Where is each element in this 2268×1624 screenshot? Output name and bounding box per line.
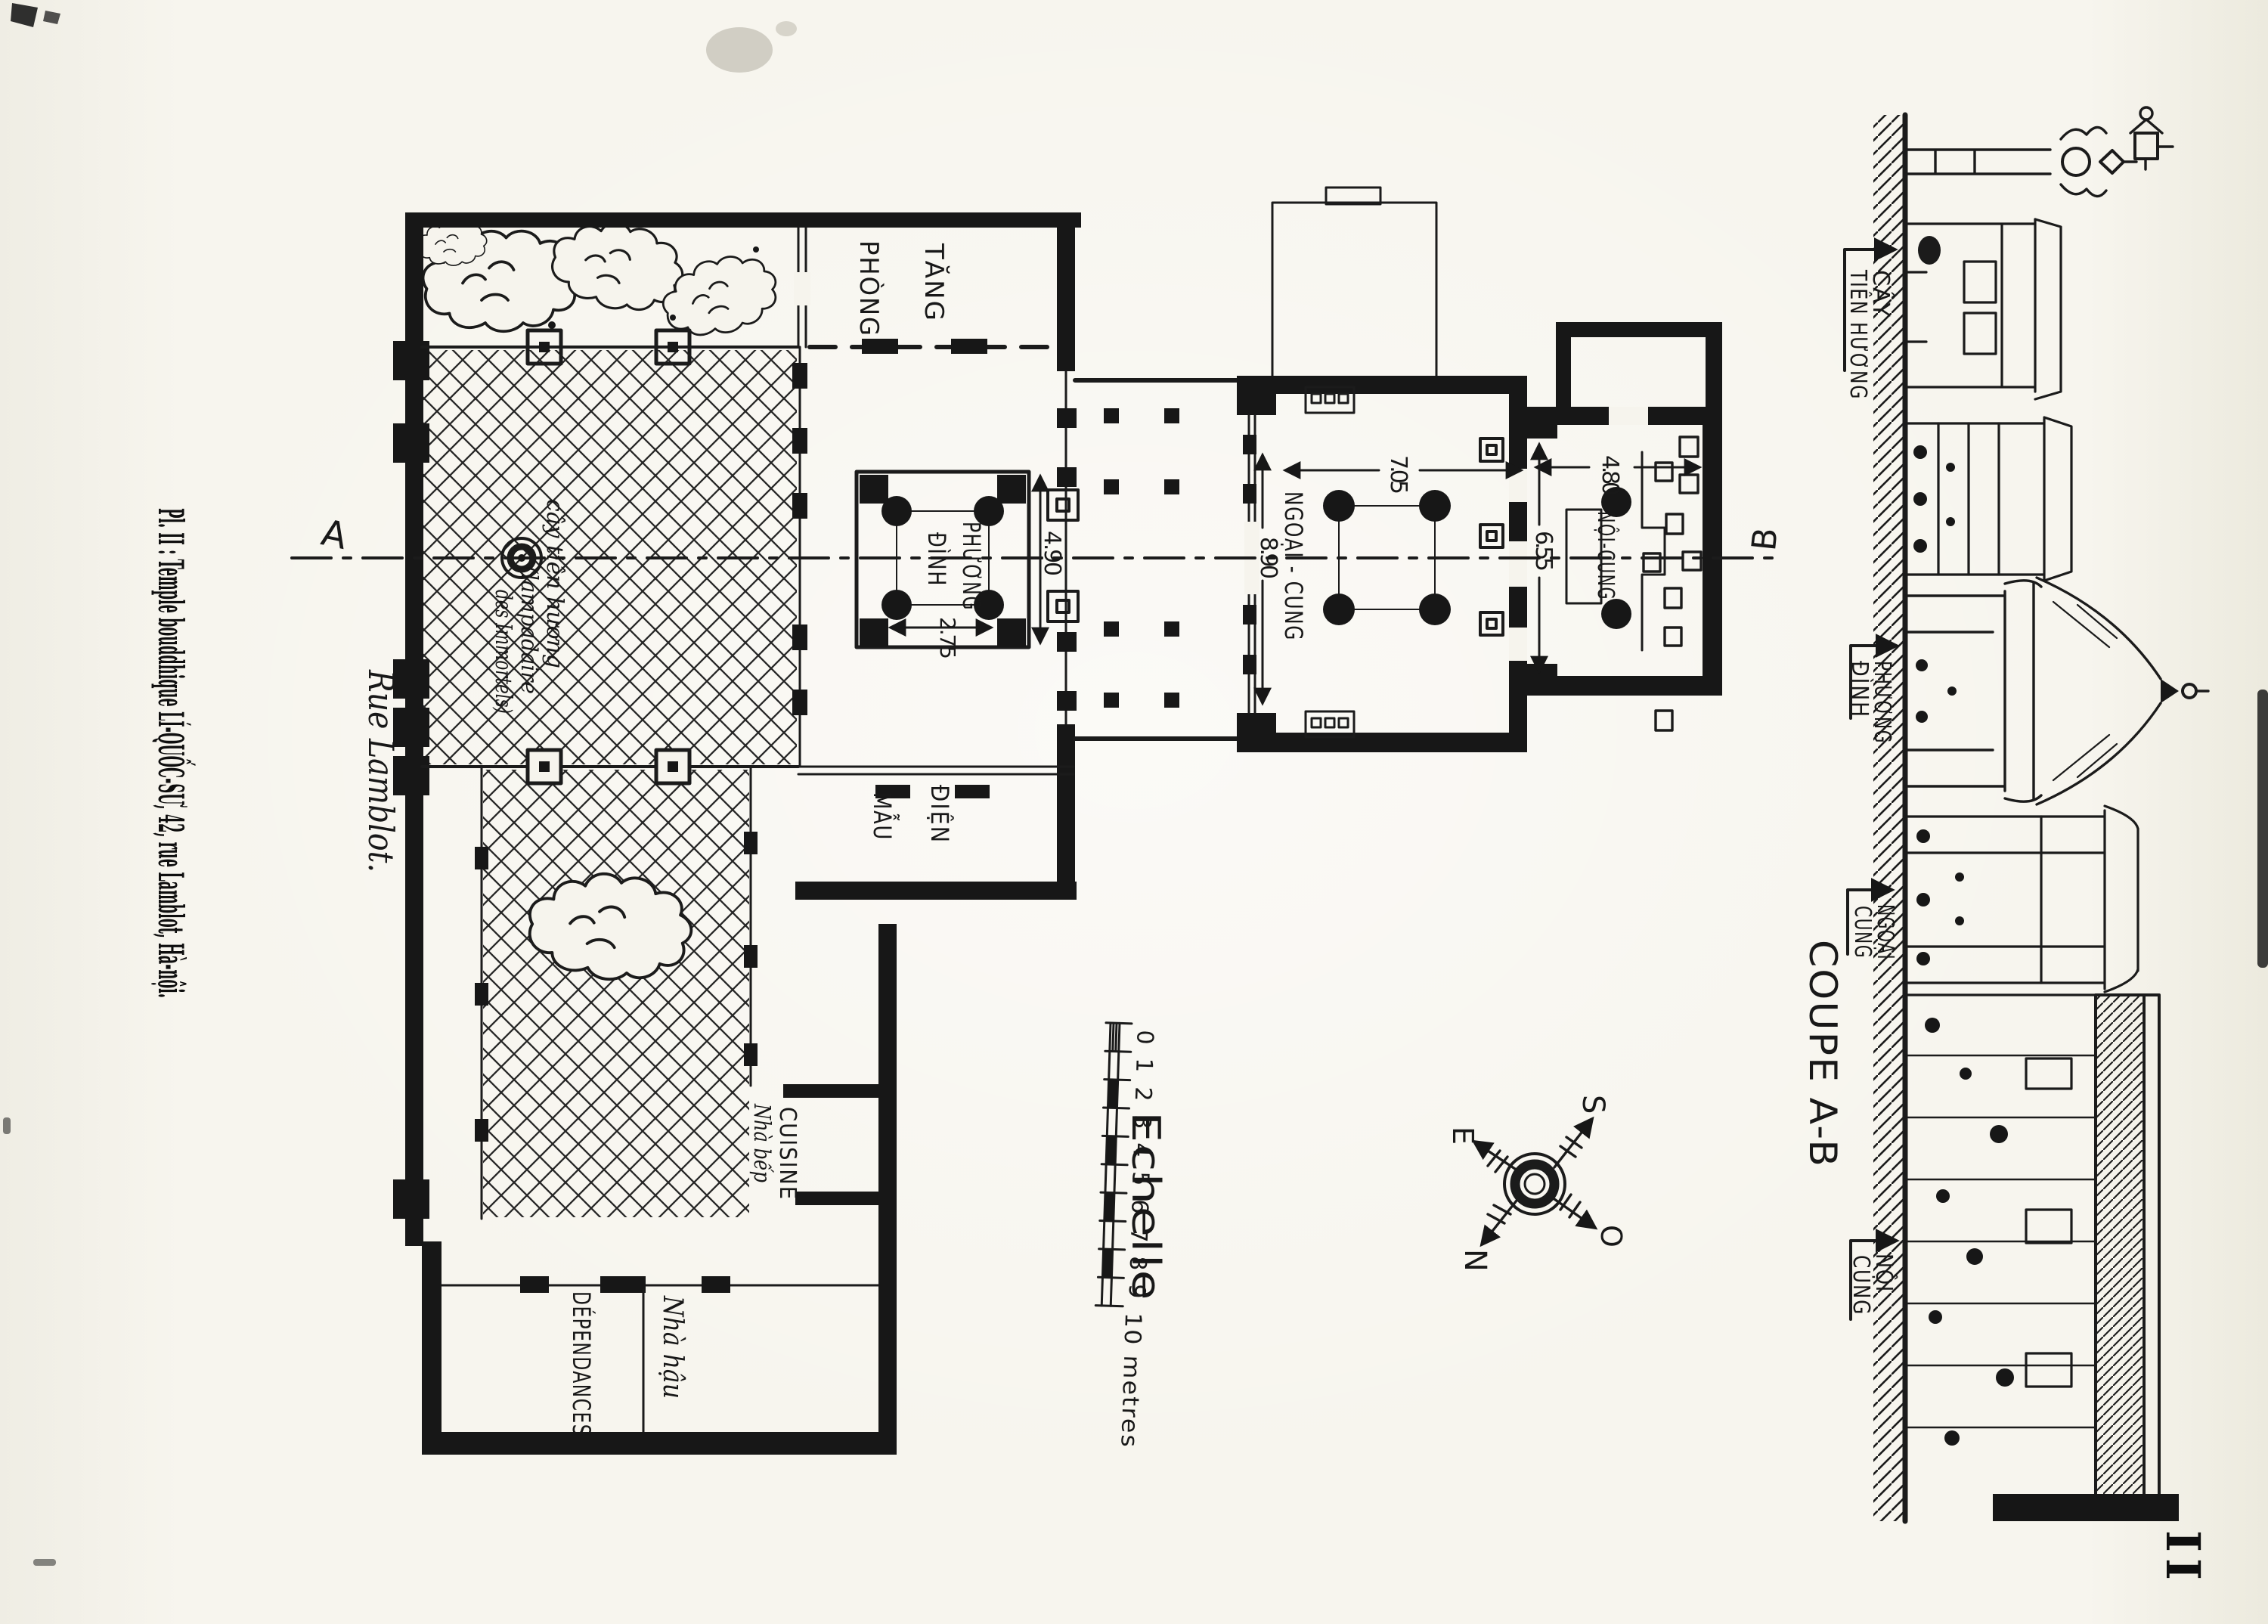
dim-ngoai-cung-width: 7.05 bbox=[1385, 455, 1411, 496]
plate-title: Pl. II : Temple bouddhique LÍ-QUỐC-SƯ, 4… bbox=[150, 508, 197, 998]
lower-courtyard-hatch bbox=[483, 770, 749, 1217]
section-title: COUPE A-B bbox=[1801, 940, 1845, 1168]
svg-text:ĐIỆN: ĐIỆN bbox=[925, 785, 954, 844]
section-front-hall bbox=[1905, 417, 2071, 581]
label-tang-phong: TĂNG PHÒNG bbox=[854, 240, 950, 337]
svg-text:MẪU: MẪU bbox=[868, 792, 900, 841]
incense-pillar bbox=[1905, 107, 2173, 197]
svg-text:1: 1 bbox=[1130, 1058, 1157, 1074]
section-marker-b: B bbox=[1745, 525, 1786, 553]
compass-north: N bbox=[1458, 1249, 1492, 1273]
section-phuong-dinh bbox=[1905, 578, 2208, 804]
scale-end-label: 10 metres bbox=[1115, 1313, 1146, 1449]
floor-plan: 4.90 2.75 8.90 7.05 4.80 6.55 TĂNG PHÒNG… bbox=[292, 188, 1786, 1455]
ngoai-cung-column-bases bbox=[1480, 439, 1503, 635]
label-noi-cung: NỘI-CUNG bbox=[1592, 511, 1620, 600]
dim-ngoai-cung-length: 8.90 bbox=[1255, 537, 1281, 581]
compass-rose: E S N O bbox=[1446, 1095, 1628, 1273]
svg-text:ĐÌNH: ĐÌNH bbox=[1846, 661, 1873, 718]
plate-drawing: Pl. II : Temple bouddhique LÍ-QUỐC-SƯ, 4… bbox=[0, 0, 2268, 1624]
compass-south: S bbox=[1576, 1095, 1610, 1115]
svg-text:CUNG: CUNG bbox=[1848, 1255, 1874, 1316]
dim-noi-cung-length: 6.55 bbox=[1530, 531, 1557, 573]
svg-text:CUISINE: CUISINE bbox=[774, 1107, 801, 1201]
section-ngoai-cung bbox=[1905, 806, 2138, 992]
svg-text:(lampadaire: (lampadaire bbox=[516, 566, 542, 694]
label-nha-hau: Nhà hậu bbox=[657, 1295, 688, 1399]
noi-cung-hall bbox=[1526, 322, 1722, 730]
svg-text:CUNG: CUNG bbox=[1849, 906, 1876, 959]
svg-text:TIÊN HƯƠNG: TIÊN HƯƠNG bbox=[1845, 269, 1872, 400]
svg-text:TĂNG: TĂNG bbox=[919, 243, 950, 322]
section-view: CÂY TIÊN HƯƠNG PHƯƠNG ĐÌNH NGOẠI CUNG NỘ… bbox=[1801, 107, 2208, 1521]
label-cuisine: CUISINE Nhà bếp bbox=[748, 1103, 801, 1201]
label-phuong-dinh: PHƯƠNG ĐÌNH bbox=[922, 522, 986, 611]
label-ngoai-cung: NGOẠI - CUNG bbox=[1279, 491, 1308, 641]
section-statues bbox=[1925, 1018, 2014, 1446]
page-number: II bbox=[2155, 1530, 2211, 1586]
svg-text:Nhà bếp: Nhà bếp bbox=[748, 1103, 775, 1182]
section-noi-cung bbox=[1905, 995, 2179, 1521]
scanned-plate: Pl. II : Temple bouddhique LÍ-QUỐC-SƯ, 4… bbox=[0, 0, 2268, 1624]
section-gate-building bbox=[1905, 219, 2061, 399]
label-dien-mau: ĐIỆN MẪU bbox=[868, 785, 954, 844]
section-ground-hatch bbox=[1873, 115, 1905, 1521]
svg-text:2: 2 bbox=[1129, 1086, 1157, 1103]
label-section-phuong-dinh: PHƯƠNG ĐÌNH bbox=[1846, 661, 1895, 744]
dim-phuong-dinh-bay: 2.75 bbox=[935, 617, 960, 661]
garden-trees bbox=[418, 209, 784, 344]
svg-text:PHÒNG: PHÒNG bbox=[854, 240, 885, 337]
svg-text:PHƯƠNG: PHƯƠNG bbox=[957, 522, 986, 611]
dim-phuong-dinh-width: 4.90 bbox=[1039, 531, 1065, 578]
scale-label: Echelle bbox=[1123, 1111, 1168, 1302]
svg-text:des Immortels): des Immortels) bbox=[490, 590, 516, 714]
section-marker-a: A bbox=[318, 511, 352, 558]
svg-text:ĐÌNH: ĐÌNH bbox=[922, 532, 951, 587]
svg-text:cây tiên hương: cây tiên hương bbox=[541, 499, 568, 668]
compass-east: E bbox=[1446, 1127, 1479, 1146]
svg-text:0: 0 bbox=[1131, 1030, 1158, 1046]
label-dependances: DÉPENDANCES bbox=[567, 1291, 596, 1436]
label-section-ngoai-cung: NGOẠI CUNG bbox=[1849, 904, 1898, 960]
dim-noi-cung-width: 4.80 bbox=[1597, 455, 1623, 497]
flag-finial bbox=[2130, 107, 2173, 169]
compass-west: O bbox=[1594, 1225, 1628, 1249]
ngoai-cung-altars bbox=[1306, 387, 1354, 737]
